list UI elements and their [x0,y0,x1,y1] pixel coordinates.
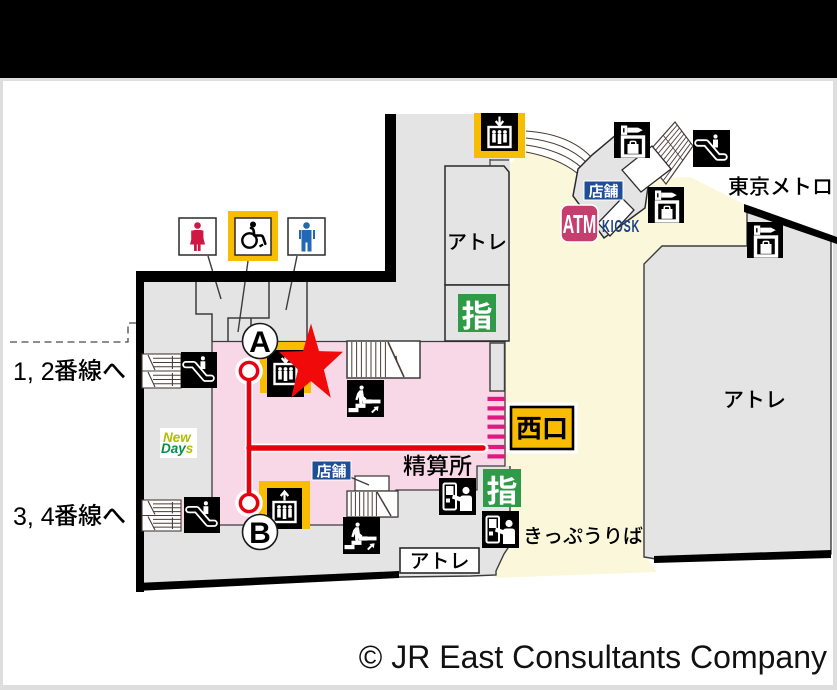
svg-text:1, 2: 1, 2 [13,358,55,386]
svg-text:3, 4: 3, 4 [13,503,55,531]
svg-text:ATM: ATM [563,209,597,239]
svg-text:KIOSK: KIOSK [602,218,640,237]
svg-text:A: A [249,326,271,359]
svg-text:Days: Days [161,441,194,456]
svg-text:© JR East Consultants Company: © JR East Consultants Company [359,639,827,675]
svg-text:B: B [249,517,271,550]
